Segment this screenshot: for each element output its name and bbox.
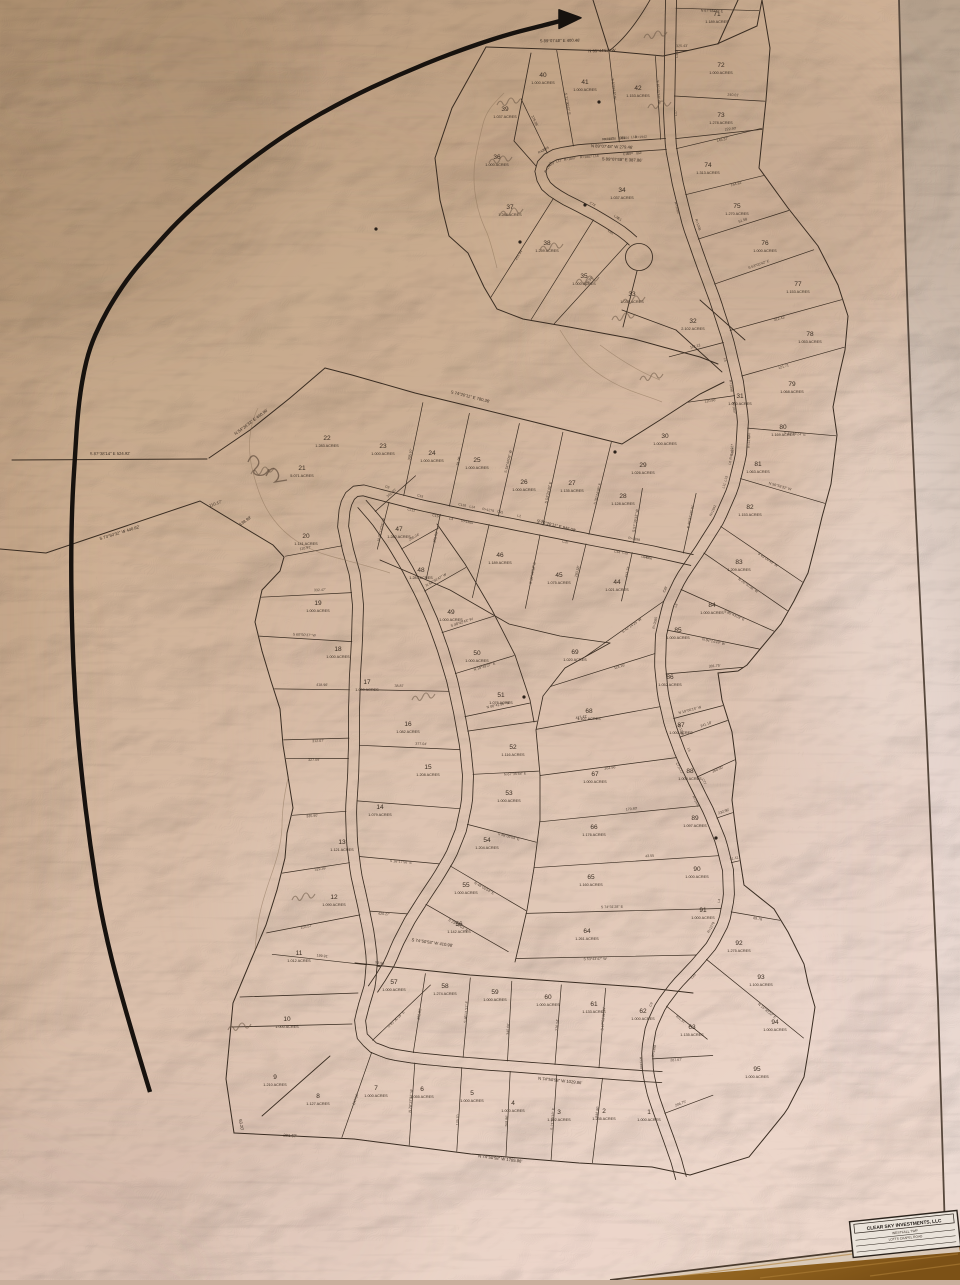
svg-text:28: 28 bbox=[619, 493, 627, 500]
svg-text:C70: C70 bbox=[627, 151, 634, 155]
svg-text:1.000 ACRES: 1.000 ACRES bbox=[306, 609, 330, 613]
svg-text:46: 46 bbox=[496, 552, 504, 559]
svg-text:1.153 ACRES: 1.153 ACRES bbox=[738, 513, 762, 517]
svg-text:73: 73 bbox=[717, 112, 725, 119]
svg-text:1.000 ACRES: 1.000 ACRES bbox=[371, 452, 395, 456]
svg-text:42: 42 bbox=[634, 85, 642, 92]
svg-text:1.068 ACRES: 1.068 ACRES bbox=[780, 390, 804, 394]
svg-text:18: 18 bbox=[334, 646, 342, 653]
svg-text:57: 57 bbox=[390, 979, 398, 986]
svg-text:1.000 ACRES: 1.000 ACRES bbox=[745, 1075, 769, 1079]
svg-text:44: 44 bbox=[613, 579, 621, 586]
svg-text:61: 61 bbox=[590, 1001, 598, 1008]
svg-text:R=1279: R=1279 bbox=[747, 436, 752, 448]
svg-text:1.075 ACRES: 1.075 ACRES bbox=[547, 581, 571, 585]
svg-text:1.121 ACRES: 1.121 ACRES bbox=[330, 848, 354, 852]
svg-text:340.66': 340.66' bbox=[506, 1023, 511, 1035]
svg-text:5.071 ACRES: 5.071 ACRES bbox=[290, 474, 314, 478]
svg-text:88: 88 bbox=[686, 768, 694, 775]
svg-text:1.000 ACRES: 1.000 ACRES bbox=[326, 655, 350, 659]
svg-text:1.063 ACRES: 1.063 ACRES bbox=[746, 470, 770, 474]
svg-text:27: 27 bbox=[568, 480, 576, 487]
svg-text:1.000 ACRES: 1.000 ACRES bbox=[753, 249, 777, 253]
svg-text:38: 38 bbox=[543, 240, 551, 247]
svg-text:23: 23 bbox=[379, 443, 387, 450]
svg-text:1.000 ACRES: 1.000 ACRES bbox=[583, 780, 607, 784]
svg-text:281.67': 281.67' bbox=[283, 1133, 297, 1139]
svg-text:R=1398: R=1398 bbox=[639, 1057, 644, 1069]
svg-text:C31: C31 bbox=[619, 136, 626, 140]
svg-text:67: 67 bbox=[591, 771, 599, 778]
svg-text:89: 89 bbox=[691, 815, 699, 822]
svg-text:1.000 ACRES: 1.000 ACRES bbox=[531, 81, 555, 85]
svg-text:332.47': 332.47' bbox=[314, 588, 326, 593]
svg-text:25: 25 bbox=[473, 457, 481, 464]
svg-text:S 74°31'28" E: S 74°31'28" E bbox=[601, 905, 624, 909]
svg-text:7: 7 bbox=[374, 1085, 378, 1092]
svg-text:C108: C108 bbox=[675, 50, 679, 58]
svg-text:1.000 ACRES: 1.000 ACRES bbox=[536, 1003, 560, 1007]
svg-text:1.283 ACRES: 1.283 ACRES bbox=[315, 444, 339, 448]
svg-text:129.70: 129.70 bbox=[456, 1114, 461, 1125]
svg-text:31: 31 bbox=[736, 393, 744, 400]
svg-text:1.000 ACRES: 1.000 ACRES bbox=[497, 799, 521, 803]
svg-text:1.135 ACRES: 1.135 ACRES bbox=[680, 1033, 704, 1037]
svg-text:10: 10 bbox=[283, 1016, 291, 1023]
svg-text:1.090 ACRES: 1.090 ACRES bbox=[322, 903, 346, 907]
svg-text:1.153 ACRES: 1.153 ACRES bbox=[786, 290, 810, 294]
svg-text:1.275 ACRES: 1.275 ACRES bbox=[727, 949, 751, 953]
svg-text:1.000 ACRES: 1.000 ACRES bbox=[465, 466, 489, 470]
svg-text:38.87: 38.87 bbox=[395, 684, 404, 688]
svg-text:22: 22 bbox=[323, 435, 331, 442]
svg-text:N 67°55'09" E: N 67°55'09" E bbox=[701, 9, 724, 14]
svg-text:1.000 ACRES: 1.000 ACRES bbox=[678, 777, 702, 781]
svg-text:1.116 ACRES: 1.116 ACRES bbox=[501, 753, 525, 757]
svg-text:1.160 ACRES: 1.160 ACRES bbox=[579, 883, 603, 887]
svg-text:L17: L17 bbox=[674, 110, 678, 116]
svg-text:1.000 ACRES: 1.000 ACRES bbox=[631, 1017, 655, 1021]
svg-text:19: 19 bbox=[314, 600, 322, 607]
svg-text:26: 26 bbox=[520, 479, 528, 486]
svg-text:4: 4 bbox=[511, 1100, 515, 1107]
svg-text:85: 85 bbox=[674, 627, 682, 634]
svg-text:268.86': 268.86' bbox=[505, 1115, 510, 1127]
svg-text:83: 83 bbox=[735, 559, 743, 566]
svg-text:1.313 ACRES: 1.313 ACRES bbox=[696, 171, 720, 175]
svg-text:420.27': 420.27' bbox=[378, 912, 390, 917]
svg-text:40: 40 bbox=[539, 72, 547, 79]
svg-text:1.000 ACRES: 1.000 ACRES bbox=[364, 1094, 388, 1098]
svg-text:1.210 ACRES: 1.210 ACRES bbox=[263, 1083, 287, 1087]
svg-text:R=1807: R=1807 bbox=[580, 155, 592, 160]
svg-text:1.037 ACRES: 1.037 ACRES bbox=[493, 115, 517, 119]
svg-text:49: 49 bbox=[447, 609, 455, 616]
svg-text:1.012 ACRES: 1.012 ACRES bbox=[287, 959, 311, 963]
svg-text:1.127 ACRES: 1.127 ACRES bbox=[306, 1102, 330, 1106]
svg-text:62: 62 bbox=[639, 1008, 647, 1015]
svg-text:1.000 ACRES: 1.000 ACRES bbox=[709, 71, 733, 75]
svg-text:L16: L16 bbox=[593, 154, 599, 158]
svg-text:77: 77 bbox=[794, 281, 802, 288]
svg-text:86: 86 bbox=[666, 674, 674, 681]
svg-text:72: 72 bbox=[717, 62, 725, 69]
svg-text:50: 50 bbox=[473, 650, 481, 657]
svg-text:325.43': 325.43' bbox=[676, 44, 688, 48]
svg-text:79: 79 bbox=[788, 381, 796, 388]
svg-text:45: 45 bbox=[555, 572, 563, 579]
svg-text:74: 74 bbox=[704, 162, 712, 169]
svg-text:6: 6 bbox=[420, 1086, 424, 1093]
svg-text:240.01': 240.01' bbox=[727, 93, 739, 98]
svg-text:1.037 ACRES: 1.037 ACRES bbox=[610, 196, 634, 200]
svg-text:1.274 ACRES: 1.274 ACRES bbox=[433, 992, 457, 996]
svg-text:13: 13 bbox=[338, 839, 346, 846]
svg-text:59: 59 bbox=[491, 989, 499, 996]
svg-text:17: 17 bbox=[363, 679, 371, 686]
svg-text:1.000 ACRES: 1.000 ACRES bbox=[691, 916, 715, 920]
svg-text:20: 20 bbox=[302, 533, 310, 540]
svg-text:58: 58 bbox=[441, 983, 449, 990]
svg-text:2.102 ACRES: 2.102 ACRES bbox=[681, 327, 705, 331]
svg-text:63: 63 bbox=[688, 1024, 696, 1031]
svg-text:312.07': 312.07' bbox=[312, 739, 324, 743]
svg-text:9: 9 bbox=[273, 1074, 277, 1081]
svg-text:81: 81 bbox=[754, 461, 762, 468]
svg-text:L13: L13 bbox=[631, 135, 637, 139]
svg-text:32: 32 bbox=[689, 318, 697, 325]
svg-text:1.208 ACRES: 1.208 ACRES bbox=[416, 773, 440, 777]
svg-text:2: 2 bbox=[602, 1108, 606, 1115]
svg-text:66: 66 bbox=[590, 824, 598, 831]
svg-text:1.261 ACRES: 1.261 ACRES bbox=[575, 937, 599, 941]
svg-text:1.079 ACRES: 1.079 ACRES bbox=[368, 813, 392, 817]
svg-text:1.082 ACRES: 1.082 ACRES bbox=[396, 730, 420, 734]
svg-text:1.189 ACRES: 1.189 ACRES bbox=[705, 20, 729, 24]
svg-text:24: 24 bbox=[428, 450, 436, 457]
svg-text:L12: L12 bbox=[636, 151, 642, 155]
svg-text:1.209 ACRES: 1.209 ACRES bbox=[727, 568, 751, 572]
svg-text:1.278 ACRES: 1.278 ACRES bbox=[709, 121, 733, 125]
svg-text:1.000 ACRES: 1.000 ACRES bbox=[501, 1109, 525, 1113]
svg-text:37: 37 bbox=[506, 204, 514, 211]
svg-text:39: 39 bbox=[501, 106, 509, 113]
svg-text:76: 76 bbox=[761, 240, 769, 247]
svg-text:65: 65 bbox=[587, 874, 595, 881]
svg-text:34: 34 bbox=[618, 187, 626, 194]
svg-text:82: 82 bbox=[746, 504, 754, 511]
svg-text:51: 51 bbox=[497, 692, 505, 699]
svg-text:29: 29 bbox=[639, 462, 647, 469]
svg-text:1.153 ACRES: 1.153 ACRES bbox=[626, 94, 650, 98]
svg-text:S 53°43'47" W: S 53°43'47" W bbox=[583, 957, 607, 961]
svg-text:8: 8 bbox=[316, 1093, 320, 1100]
svg-text:43.55: 43.55 bbox=[645, 854, 654, 859]
svg-text:1.055 ACRES: 1.055 ACRES bbox=[410, 1095, 434, 1099]
svg-text:55: 55 bbox=[462, 882, 470, 889]
svg-text:1.000 ACRES: 1.000 ACRES bbox=[512, 488, 536, 492]
svg-text:54: 54 bbox=[483, 837, 491, 844]
svg-text:1.097 ACRES: 1.097 ACRES bbox=[683, 824, 707, 828]
svg-text:11: 11 bbox=[296, 950, 303, 957]
svg-text:1.287 ACRES: 1.287 ACRES bbox=[409, 576, 433, 580]
svg-text:1.000 ACRES: 1.000 ACRES bbox=[666, 636, 690, 640]
svg-text:418.96': 418.96' bbox=[316, 683, 328, 687]
svg-text:16: 16 bbox=[404, 721, 412, 728]
svg-text:21: 21 bbox=[298, 465, 306, 472]
svg-text:1.135 ACRES: 1.135 ACRES bbox=[560, 489, 584, 493]
svg-text:1.259 ACRES: 1.259 ACRES bbox=[535, 249, 559, 253]
svg-text:93: 93 bbox=[757, 974, 765, 981]
svg-text:N 85°44'57" W: N 85°44'57" W bbox=[588, 48, 615, 54]
svg-text:69: 69 bbox=[571, 649, 579, 656]
svg-text:94: 94 bbox=[771, 1019, 779, 1026]
svg-text:1.021 ACRES: 1.021 ACRES bbox=[605, 588, 629, 592]
svg-text:48: 48 bbox=[417, 567, 425, 574]
svg-text:53: 53 bbox=[505, 790, 513, 797]
svg-text:3: 3 bbox=[557, 1109, 561, 1116]
svg-text:1.176 ACRES: 1.176 ACRES bbox=[582, 833, 606, 837]
svg-text:1.000 ACRES: 1.000 ACRES bbox=[454, 891, 478, 895]
svg-text:1.053 ACRES: 1.053 ACRES bbox=[798, 340, 822, 344]
svg-text:1.000 ACRES: 1.000 ACRES bbox=[420, 459, 444, 463]
svg-text:1.026 ACRES: 1.026 ACRES bbox=[631, 471, 655, 475]
svg-text:30: 30 bbox=[661, 433, 669, 440]
svg-text:1.052 ACRES: 1.052 ACRES bbox=[658, 683, 682, 687]
svg-text:84: 84 bbox=[708, 602, 716, 609]
svg-text:95: 95 bbox=[753, 1066, 761, 1073]
svg-text:S 87°38'14" E 524.92': S 87°38'14" E 524.92' bbox=[90, 451, 131, 456]
svg-text:78: 78 bbox=[806, 331, 814, 338]
svg-text:1: 1 bbox=[647, 1109, 651, 1116]
svg-text:1.020 ACRES: 1.020 ACRES bbox=[563, 658, 587, 662]
svg-text:335.90': 335.90' bbox=[306, 814, 318, 819]
svg-text:R=1278: R=1278 bbox=[604, 137, 616, 142]
svg-text:1.000 ACRES: 1.000 ACRES bbox=[355, 688, 379, 692]
svg-text:377.04': 377.04' bbox=[415, 742, 427, 746]
svg-text:15: 15 bbox=[424, 764, 432, 771]
svg-text:47: 47 bbox=[395, 526, 403, 533]
svg-text:60: 60 bbox=[544, 994, 552, 1001]
svg-text:41: 41 bbox=[581, 79, 589, 86]
svg-text:75: 75 bbox=[733, 203, 741, 210]
svg-text:1.000 ACRES: 1.000 ACRES bbox=[275, 1025, 299, 1029]
svg-text:14: 14 bbox=[376, 804, 384, 811]
svg-text:1.189 ACRES: 1.189 ACRES bbox=[488, 561, 512, 565]
svg-text:1.000 ACRES: 1.000 ACRES bbox=[700, 611, 724, 615]
svg-text:1.000 ACRES: 1.000 ACRES bbox=[483, 998, 507, 1002]
svg-text:1.000 ACRES: 1.000 ACRES bbox=[685, 875, 709, 879]
svg-text:1.000 ACRES: 1.000 ACRES bbox=[382, 988, 406, 992]
svg-text:12: 12 bbox=[330, 894, 338, 901]
svg-text:1.000 ACRES: 1.000 ACRES bbox=[460, 1099, 484, 1103]
svg-text:R=1927: R=1927 bbox=[730, 444, 735, 456]
svg-text:1.100 ACRES: 1.100 ACRES bbox=[749, 983, 773, 987]
svg-text:1.000 ACRES: 1.000 ACRES bbox=[653, 442, 677, 446]
svg-text:64: 64 bbox=[583, 928, 591, 935]
svg-text:1.204 ACRES: 1.204 ACRES bbox=[475, 846, 499, 850]
svg-text:1.000 ACRES: 1.000 ACRES bbox=[763, 1028, 787, 1032]
svg-text:90: 90 bbox=[693, 866, 701, 873]
svg-text:1.000 ACRES: 1.000 ACRES bbox=[573, 88, 597, 92]
svg-text:1.128 ACRES: 1.128 ACRES bbox=[611, 502, 635, 506]
svg-text:5: 5 bbox=[470, 1090, 474, 1097]
svg-text:1.000 ACRES: 1.000 ACRES bbox=[465, 659, 489, 663]
svg-text:91: 91 bbox=[699, 907, 707, 914]
svg-text:327.09': 327.09' bbox=[308, 758, 320, 762]
svg-text:1.000 ACRES: 1.000 ACRES bbox=[637, 1118, 661, 1122]
svg-text:S 89°07'48" E 400.46': S 89°07'48" E 400.46' bbox=[540, 38, 581, 44]
svg-text:1.270 ACRES: 1.270 ACRES bbox=[725, 212, 749, 216]
svg-text:287.67': 287.67' bbox=[670, 1058, 682, 1063]
svg-text:92: 92 bbox=[735, 940, 743, 947]
svg-text:52: 52 bbox=[509, 744, 517, 751]
